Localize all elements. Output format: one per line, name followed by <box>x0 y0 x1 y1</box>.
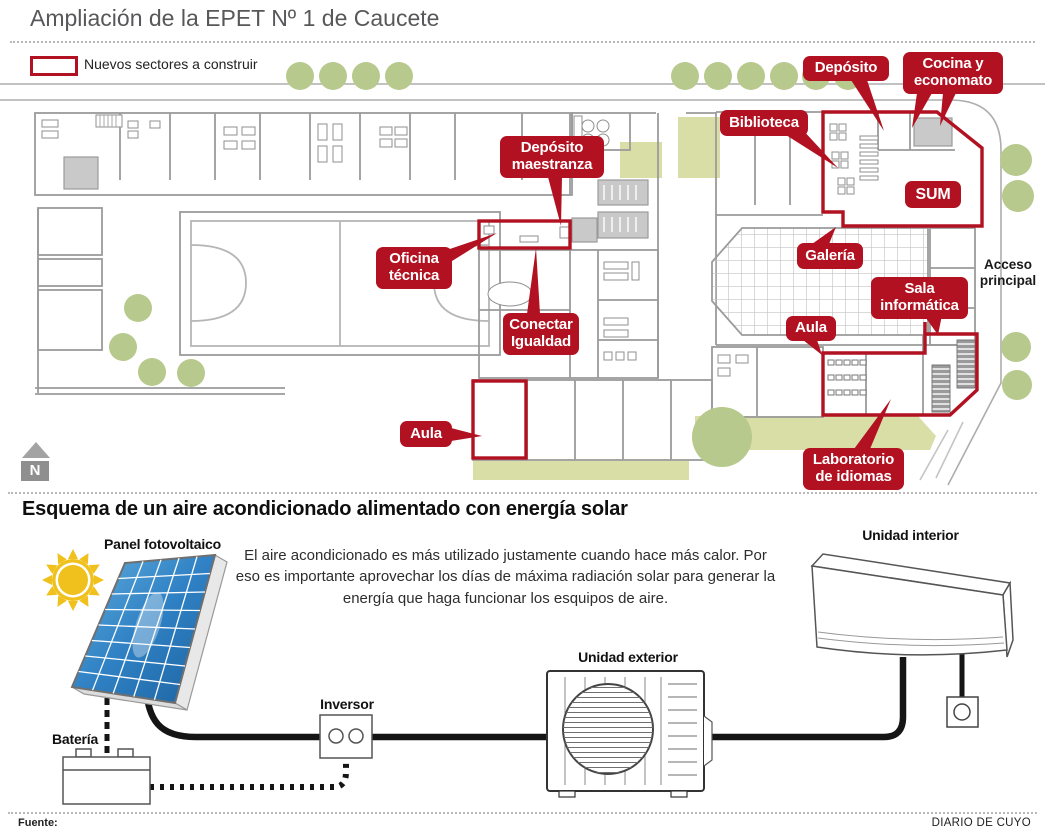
label-sum: SUM <box>905 181 961 208</box>
label-sala-informatica: Sala informática <box>871 277 968 319</box>
page-title: Ampliación de la EPET Nº 1 de Caucete <box>30 5 439 32</box>
battery-icon <box>63 749 150 804</box>
north-arrow-icon <box>22 442 50 458</box>
bateria-label: Batería <box>52 731 98 747</box>
power-outlet-icon <box>947 697 978 727</box>
inversor-label: Inversor <box>316 696 378 712</box>
inverter-icon <box>320 715 372 758</box>
label-laboratorio-idiomas: Laboratorio de idiomas <box>803 448 904 490</box>
label-deposito: Depósito <box>803 56 889 81</box>
exterior-unit <box>547 671 712 797</box>
label-biblioteca: Biblioteca <box>720 110 808 136</box>
label-cocina-economato: Cocina y economato <box>903 52 1003 94</box>
unidad-exterior-label: Unidad exterior <box>558 649 698 665</box>
north-arrow: N <box>21 442 51 481</box>
label-oficina-tecnica: Oficina técnica <box>376 247 452 289</box>
source-label: Fuente: <box>18 817 58 829</box>
infographic: Ampliación de la EPET Nº 1 de Caucete Nu… <box>0 0 1045 836</box>
label-conectar-igualdad: Conectar Igualdad <box>503 313 579 355</box>
panel-label: Panel fotovoltaico <box>104 536 221 552</box>
sun-icon <box>42 549 104 611</box>
solar-section-title: Esquema de un aire acondicionado aliment… <box>22 498 628 521</box>
credit-label: DIARIO DE CUYO <box>932 817 1031 829</box>
label-aula-derecha: Aula <box>786 316 836 341</box>
label-galeria: Galería <box>797 243 863 269</box>
unidad-interior-label: Unidad interior <box>843 527 978 543</box>
dc-cable-solid <box>146 657 903 737</box>
battery-inverter-cable-dotted <box>150 759 346 787</box>
interior-unit <box>812 554 1013 657</box>
label-deposito-maestranza: Depósito maestranza <box>500 136 604 178</box>
legend-label: Nuevos sectores a construir <box>84 56 258 72</box>
solar-description: El aire acondicionado es más utilizado j… <box>233 545 778 609</box>
north-letter: N <box>21 461 49 481</box>
label-aula-izquierda: Aula <box>400 421 452 447</box>
legend-swatch-new-sector <box>30 56 78 76</box>
drawing-layer <box>0 0 1045 836</box>
acceso-principal-label: Acceso principal <box>978 257 1038 289</box>
